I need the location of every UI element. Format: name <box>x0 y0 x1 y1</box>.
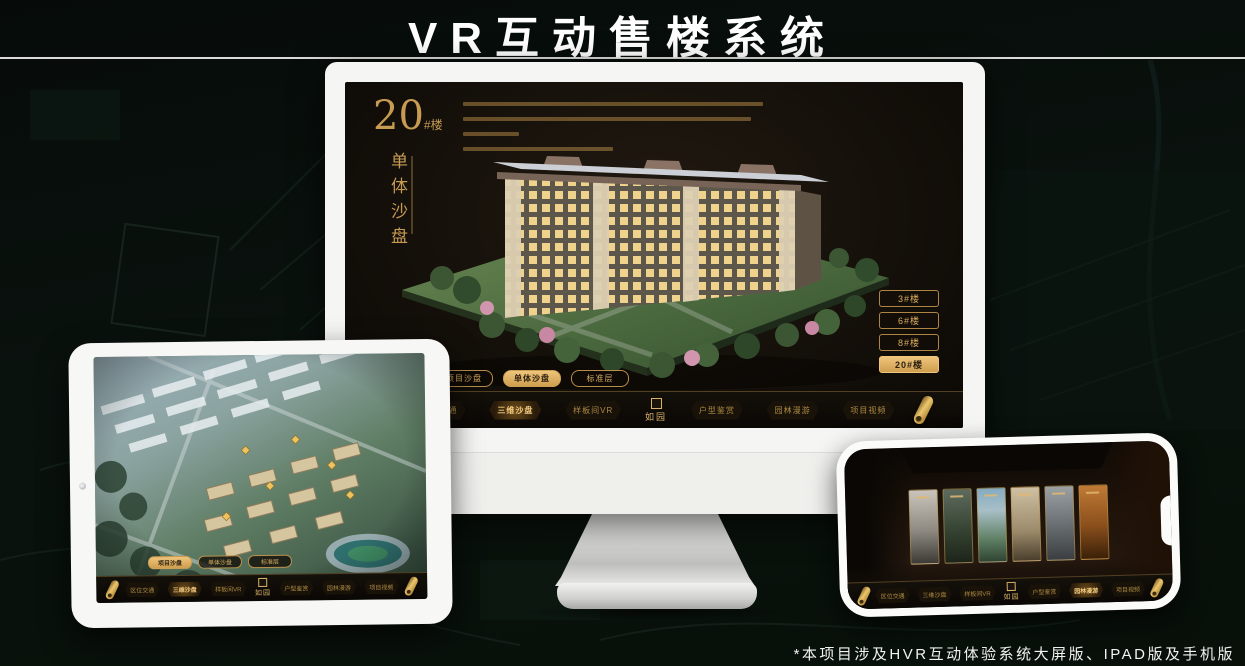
nav-item-model-room-vr[interactable]: 样板间VR <box>210 581 247 596</box>
header-divider <box>0 57 1245 59</box>
nav-item-project-video[interactable]: 项目视频 <box>1111 581 1145 597</box>
block-title: 20#楼 <box>373 96 443 136</box>
scene-card[interactable] <box>942 488 973 564</box>
block-number: 20 <box>373 93 424 139</box>
camera-icon <box>79 482 86 489</box>
nav-item-location[interactable]: 区位交通 <box>875 587 909 603</box>
scroll-icon[interactable] <box>912 394 935 426</box>
nav-item-3d-sandbox[interactable]: 三维沙盘 <box>489 401 541 420</box>
nav-item-floorplans[interactable]: 户型鉴赏 <box>1027 583 1061 599</box>
floor-button-3[interactable]: 3#楼 <box>879 290 939 307</box>
logo-seal-icon <box>651 398 662 409</box>
nav-item-project-video[interactable]: 项目视频 <box>364 579 398 594</box>
nav-item-floorplans[interactable]: 户型鉴赏 <box>691 401 743 420</box>
tablet-device: 项目沙盘 单体沙盘 标准层 区位交通 三维沙盘 样板间VR 如园 户型鉴赏 园林… <box>68 339 452 629</box>
monitor-stand-base <box>557 583 757 609</box>
tab-single-building[interactable]: 单体沙盘 <box>503 370 561 387</box>
promo-canvas: VR互动售楼系统 20#楼 单体沙盘 <box>0 0 1245 666</box>
scroll-icon[interactable] <box>1149 577 1165 599</box>
nav-item-model-room-vr[interactable]: 样板间VR <box>959 585 996 601</box>
interior-backdrop-lintel <box>900 442 1114 474</box>
phone-notch <box>1160 495 1173 545</box>
logo-name: 如园 <box>645 410 667 423</box>
scene-card[interactable] <box>1010 486 1041 562</box>
building-model-viewport[interactable] <box>397 150 902 390</box>
block-unit: #楼 <box>424 118 443 132</box>
nav-item-garden-tour[interactable]: 园林漫游 <box>322 579 356 594</box>
project-logo[interactable]: 如园 <box>645 398 667 423</box>
tab-standard-floor[interactable]: 标准层 <box>248 555 292 569</box>
nav-item-garden-tour[interactable]: 园林漫游 <box>767 401 819 420</box>
scene-card[interactable] <box>908 489 939 565</box>
scene-card[interactable] <box>1044 485 1075 561</box>
floor-button-8[interactable]: 8#楼 <box>879 334 939 351</box>
intro-line <box>463 132 519 136</box>
tab-single-building[interactable]: 单体沙盘 <box>198 555 242 569</box>
tablet-nav-bar: 区位交通 三维沙盘 样板间VR 如园 户型鉴赏 园林漫游 项目视频 <box>96 572 427 603</box>
scroll-icon[interactable] <box>105 579 121 601</box>
tab-standard-floor[interactable]: 标准层 <box>571 370 629 387</box>
nav-item-location[interactable]: 区位交通 <box>125 582 159 597</box>
nav-item-garden-tour[interactable]: 园林漫游 <box>1069 582 1103 598</box>
logo-name: 如园 <box>1003 592 1019 602</box>
nav-item-project-video[interactable]: 项目视频 <box>842 401 894 420</box>
footnote: *本项目涉及HVR互动体验系统大屏版、IPAD版及手机版 <box>794 643 1235 664</box>
nav-item-3d-sandbox[interactable]: 三维沙盘 <box>168 581 202 596</box>
floor-selector: 3#楼 6#楼 8#楼 20#楼 <box>879 290 939 373</box>
phone-device: 区位交通 三维沙盘 样板间VR 如园 户型鉴赏 园林漫游 项目视频 <box>836 432 1182 617</box>
scene-card[interactable] <box>976 487 1007 563</box>
project-logo[interactable]: 如园 <box>1003 582 1020 602</box>
logo-seal-icon <box>1007 582 1016 591</box>
scroll-icon[interactable] <box>403 575 419 597</box>
tablet-view-tabs: 项目沙盘 单体沙盘 标准层 <box>148 555 292 570</box>
scene-gallery <box>908 484 1109 565</box>
floor-button-6[interactable]: 6#楼 <box>879 312 939 329</box>
tab-project-sandbox[interactable]: 项目沙盘 <box>148 556 192 570</box>
logo-seal-icon <box>258 578 267 587</box>
nav-item-model-room-vr[interactable]: 样板间VR <box>565 401 621 420</box>
monitor-view-tabs: 项目沙盘 单体沙盘 标准层 <box>435 370 629 387</box>
project-logo[interactable]: 如园 <box>255 578 271 598</box>
intro-line <box>463 102 763 106</box>
floor-button-20[interactable]: 20#楼 <box>879 356 939 373</box>
logo-name: 如园 <box>255 588 271 598</box>
scene-card[interactable] <box>1078 484 1109 560</box>
phone-screen: 区位交通 三维沙盘 样板间VR 如园 户型鉴赏 园林漫游 项目视频 <box>844 440 1173 609</box>
intro-line <box>463 117 751 121</box>
nav-item-3d-sandbox[interactable]: 三维沙盘 <box>917 586 951 602</box>
tablet-screen: 项目沙盘 单体沙盘 标准层 区位交通 三维沙盘 样板间VR 如园 户型鉴赏 园林… <box>93 353 427 603</box>
scroll-icon[interactable] <box>856 585 872 607</box>
nav-item-floorplans[interactable]: 户型鉴赏 <box>279 580 313 595</box>
